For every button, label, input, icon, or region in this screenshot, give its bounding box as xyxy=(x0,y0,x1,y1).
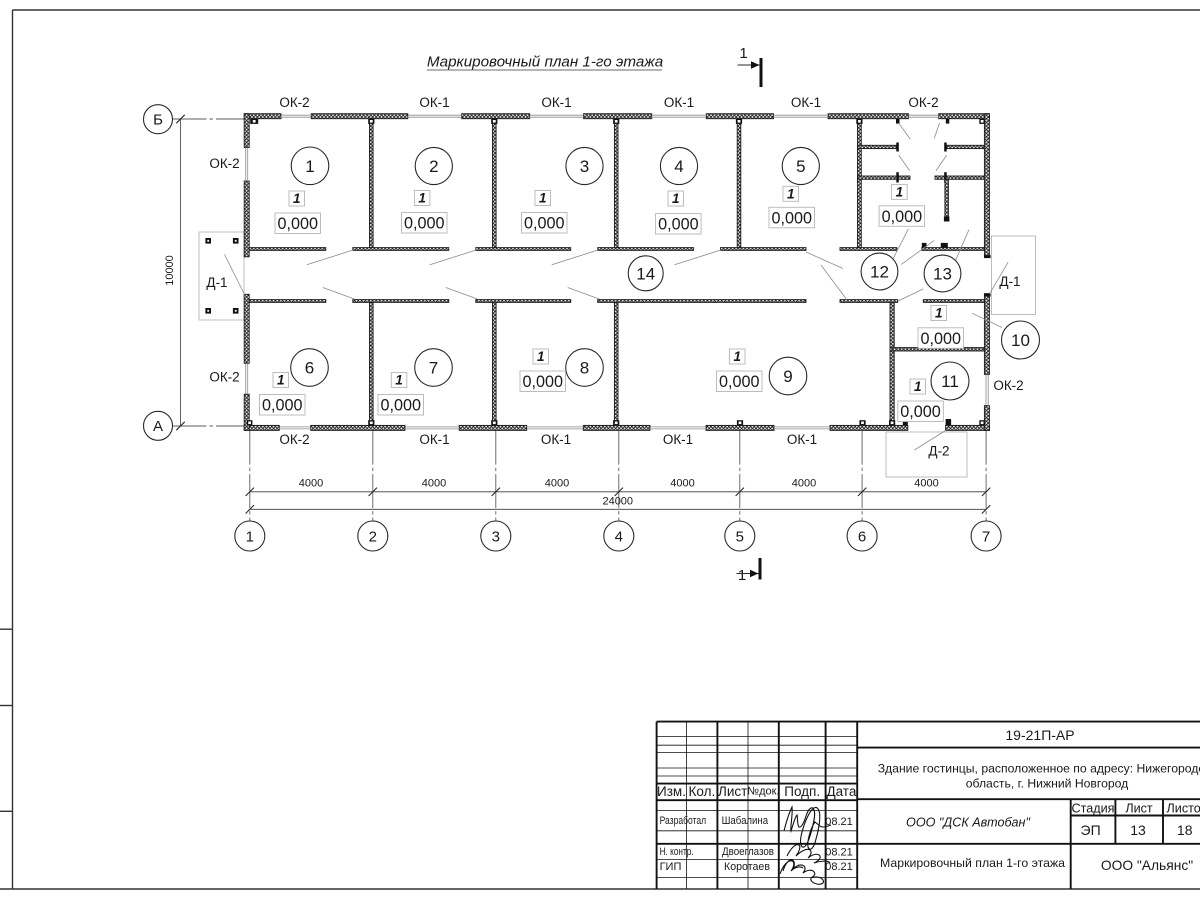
svg-text:4000: 4000 xyxy=(914,478,938,490)
svg-text:область, г. Нижний Новгород: область, г. Нижний Новгород xyxy=(966,776,1129,790)
svg-text:08.21: 08.21 xyxy=(825,847,853,859)
svg-text:Стадия: Стадия xyxy=(1072,801,1115,815)
svg-text:0,000: 0,000 xyxy=(771,209,812,227)
svg-text:5: 5 xyxy=(736,528,744,545)
svg-text:Здание гостинцы, расположенное: Здание гостинцы, расположенное по адресу… xyxy=(878,762,1200,776)
svg-text:13: 13 xyxy=(1130,822,1146,838)
svg-text:ОК-1: ОК-1 xyxy=(419,432,449,447)
svg-text:1: 1 xyxy=(305,157,314,176)
svg-text:1: 1 xyxy=(537,349,545,364)
svg-text:14: 14 xyxy=(636,264,655,283)
svg-text:1: 1 xyxy=(277,373,285,388)
svg-text:10: 10 xyxy=(1011,331,1030,350)
svg-text:4: 4 xyxy=(615,528,623,545)
svg-text:ОК-1: ОК-1 xyxy=(419,95,449,110)
svg-text:ОК-2: ОК-2 xyxy=(993,378,1023,393)
svg-text:ОК-1: ОК-1 xyxy=(787,432,817,447)
svg-text:7: 7 xyxy=(982,528,990,545)
svg-text:19-21П-АР: 19-21П-АР xyxy=(1005,727,1074,743)
svg-text:ОК-1: ОК-1 xyxy=(664,95,694,110)
svg-text:ОК-2: ОК-2 xyxy=(279,95,309,110)
svg-text:1: 1 xyxy=(738,567,746,584)
svg-text:1: 1 xyxy=(246,528,254,545)
svg-text:13: 13 xyxy=(933,264,952,283)
svg-text:Б: Б xyxy=(153,111,163,128)
svg-text:А: А xyxy=(153,418,163,435)
svg-text:1: 1 xyxy=(787,186,795,201)
svg-text:2: 2 xyxy=(369,528,377,545)
svg-text:3: 3 xyxy=(580,157,589,176)
svg-text:1: 1 xyxy=(935,306,943,321)
svg-text:5: 5 xyxy=(796,157,805,176)
svg-text:Д-1: Д-1 xyxy=(206,275,227,290)
svg-text:Д-1: Д-1 xyxy=(999,274,1020,289)
svg-text:0,000: 0,000 xyxy=(262,397,303,415)
svg-text:4000: 4000 xyxy=(422,478,446,490)
svg-text:0,000: 0,000 xyxy=(900,403,941,421)
svg-text:Лист: Лист xyxy=(1125,801,1153,815)
svg-text:0,000: 0,000 xyxy=(920,330,961,348)
svg-text:Разработал: Разработал xyxy=(660,815,707,827)
svg-text:ГИП: ГИП xyxy=(660,861,682,873)
svg-text:ОК-2: ОК-2 xyxy=(209,370,239,385)
svg-text:0,000: 0,000 xyxy=(380,397,421,415)
svg-text:1: 1 xyxy=(293,191,301,206)
svg-text:6: 6 xyxy=(305,358,314,377)
svg-text:2: 2 xyxy=(429,157,438,176)
svg-text:ООО "Альянс": ООО "Альянс" xyxy=(1101,858,1193,873)
svg-text:0,000: 0,000 xyxy=(658,216,699,234)
svg-text:1: 1 xyxy=(539,191,547,206)
svg-text:1: 1 xyxy=(896,184,904,199)
svg-text:10000: 10000 xyxy=(164,255,176,286)
svg-text:ОК-2: ОК-2 xyxy=(209,156,239,171)
svg-text:4000: 4000 xyxy=(299,478,323,490)
svg-text:ЭП: ЭП xyxy=(1081,822,1101,838)
svg-text:Лист: Лист xyxy=(718,784,747,799)
svg-text:24000: 24000 xyxy=(602,496,633,508)
svg-text:12: 12 xyxy=(870,262,889,281)
svg-text:0,000: 0,000 xyxy=(277,215,318,233)
svg-text:Н. контр.: Н. контр. xyxy=(660,846,694,858)
svg-text:4000: 4000 xyxy=(545,478,569,490)
svg-text:Подп.: Подп. xyxy=(784,784,820,799)
svg-text:ОК-1: ОК-1 xyxy=(541,95,571,110)
svg-text:11: 11 xyxy=(941,372,959,391)
svg-text:ОК-1: ОК-1 xyxy=(663,432,693,447)
svg-text:1: 1 xyxy=(672,191,680,206)
svg-text:0,000: 0,000 xyxy=(882,208,923,226)
svg-text:Маркировочный план 1-го этажа: Маркировочный план 1-го этажа xyxy=(880,856,1065,870)
svg-text:18: 18 xyxy=(1177,822,1193,838)
svg-text:3: 3 xyxy=(492,528,500,545)
svg-text:1: 1 xyxy=(914,379,922,394)
svg-text:8: 8 xyxy=(580,358,589,377)
svg-text:Двоеглазов: Двоеглазов xyxy=(722,846,774,858)
svg-text:1: 1 xyxy=(418,191,426,206)
svg-text:4: 4 xyxy=(674,157,683,176)
svg-text:6: 6 xyxy=(858,528,866,545)
svg-text:№док.: №док. xyxy=(747,786,779,798)
svg-text:ОК-1: ОК-1 xyxy=(791,95,821,110)
svg-text:0,000: 0,000 xyxy=(522,373,563,391)
svg-text:ОК-1: ОК-1 xyxy=(541,432,571,447)
svg-text:1: 1 xyxy=(739,45,747,62)
svg-text:ОК-2: ОК-2 xyxy=(908,95,938,110)
svg-text:0,000: 0,000 xyxy=(404,215,445,233)
svg-text:ОК-2: ОК-2 xyxy=(279,432,309,447)
svg-text:Изм.: Изм. xyxy=(657,784,686,799)
svg-text:0,000: 0,000 xyxy=(524,215,565,233)
svg-text:Шабалина: Шабалина xyxy=(722,815,769,827)
svg-text:4000: 4000 xyxy=(792,478,816,490)
svg-text:Дата: Дата xyxy=(826,784,856,799)
svg-text:Коротаев: Коротаев xyxy=(724,861,770,873)
svg-text:4000: 4000 xyxy=(670,478,694,490)
svg-text:Листов: Листов xyxy=(1167,801,1200,815)
svg-text:7: 7 xyxy=(429,358,438,377)
svg-text:0,000: 0,000 xyxy=(719,373,760,391)
svg-text:Д-2: Д-2 xyxy=(928,444,949,459)
svg-text:ООО "ДСК Автобан": ООО "ДСК Автобан" xyxy=(906,815,1030,829)
svg-text:Кол.: Кол. xyxy=(689,784,716,799)
svg-text:1: 1 xyxy=(395,373,403,388)
svg-text:Маркировочный план 1-го этажа: Маркировочный план 1-го этажа xyxy=(427,54,663,71)
svg-text:1: 1 xyxy=(733,349,741,364)
svg-text:9: 9 xyxy=(783,367,792,386)
